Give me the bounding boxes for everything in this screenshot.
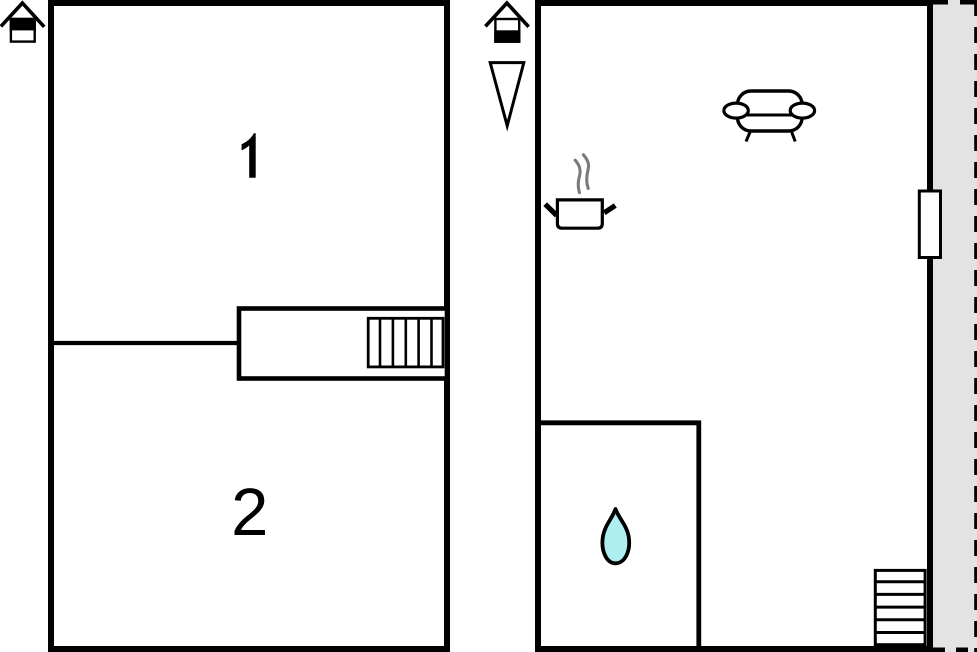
svg-text:2: 2 [231, 475, 268, 550]
